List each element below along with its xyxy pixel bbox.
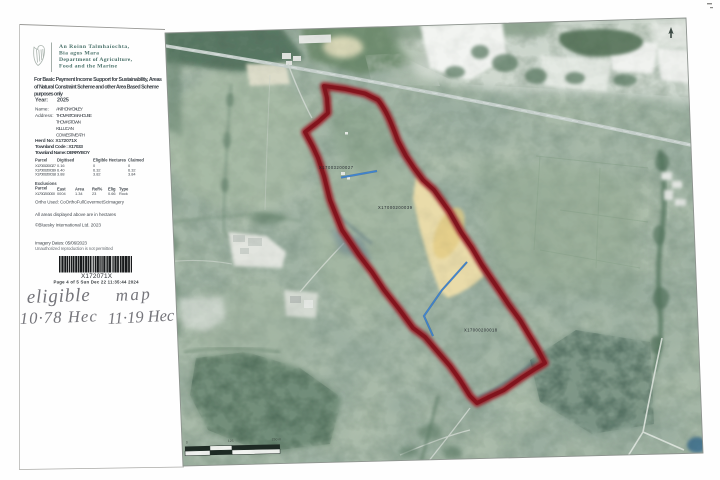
svg-text:Rock: Rock — [119, 191, 128, 196]
svg-text:All areas displayed above are: All areas displayed above are in hectare… — [35, 212, 117, 217]
svg-text:X1700200000: X1700200000 — [35, 191, 56, 196]
svg-text:Address:: Address: — [35, 113, 54, 118]
svg-text:Eligible Hectares: Eligible Hectares — [93, 158, 127, 163]
svg-text:Parcel: Parcel — [35, 158, 47, 163]
svg-text:Ortho Used: CoOrthoFullCoverme: Ortho Used: CoOrthoFullCovermetScImagery — [35, 200, 125, 205]
svg-text:Department of Agriculture,: Department of Agriculture, — [59, 57, 133, 63]
svg-text:Year:: Year: — [35, 98, 48, 104]
svg-text:0.66: 0.66 — [108, 191, 116, 196]
svg-text:of Natural Constraint Scheme a: of Natural Constraint Scheme and other A… — [34, 84, 159, 90]
svg-text:Food and the Marine: Food and the Marine — [59, 63, 117, 69]
svg-text:1.34: 1.34 — [75, 191, 83, 196]
svg-text:3.88: 3.88 — [57, 172, 65, 177]
svg-text:purposes only: purposes only — [34, 91, 63, 97]
svg-text:CO WESTMEATH: CO WESTMEATH — [56, 132, 85, 137]
svg-text:Page 4 of 5 Sun Dec 22 11:35:4: Page 4 of 5 Sun Dec 22 11:35:44 2024 — [54, 280, 140, 285]
svg-text:3.84: 3.84 — [128, 172, 136, 177]
svg-text:Claimed: Claimed — [128, 158, 144, 163]
svg-text:©Bluesky International Ltd. 20: ©Bluesky International Ltd. 2023 — [35, 221, 101, 227]
svg-text:Unauthorized reproduction is n: Unauthorized reproduction is not permitt… — [35, 246, 114, 251]
svg-text:map: map — [115, 284, 150, 305]
svg-text:11·19 Hec: 11·19 Hec — [107, 306, 175, 328]
svg-text:For Basic Payment Income Suppo: For Basic Payment Income Support for Sus… — [34, 77, 162, 83]
svg-text:Townland Code : X17033: Townland Code : X17033 — [35, 144, 83, 150]
svg-text:X17000200018: X17000200018 — [35, 172, 56, 177]
svg-text:Name:: Name: — [35, 106, 49, 111]
svg-text:Parcel: Parcel — [35, 186, 47, 191]
svg-text:3.82: 3.82 — [93, 172, 101, 177]
svg-text:Herd No: X172071X: Herd No: X172071X — [35, 138, 78, 144]
svg-text:2025: 2025 — [57, 98, 69, 104]
svg-text:Townland Name: DERRYBOY: Townland Name: DERRYBOY — [35, 150, 91, 156]
svg-text:0004: 0004 — [57, 191, 66, 196]
svg-text:Digitised: Digitised — [57, 158, 75, 163]
svg-text:An Roinn Talmhaíochta,: An Roinn Talmhaíochta, — [59, 44, 130, 50]
svg-text:THOMASTOWN HOUSE: THOMASTOWN HOUSE — [56, 113, 92, 118]
svg-text:THOMASTOWN: THOMASTOWN — [56, 119, 81, 124]
svg-text:eligible: eligible — [26, 285, 90, 308]
svg-text:ANTHONY OXLEY: ANTHONY OXLEY — [56, 106, 84, 111]
svg-text:10·78 Hec: 10·78 Hec — [19, 306, 97, 328]
svg-text:23: 23 — [92, 191, 96, 196]
svg-text:KILLUCAN: KILLUCAN — [56, 126, 74, 131]
svg-text:Bia agus Mara: Bia agus Mara — [59, 51, 99, 57]
